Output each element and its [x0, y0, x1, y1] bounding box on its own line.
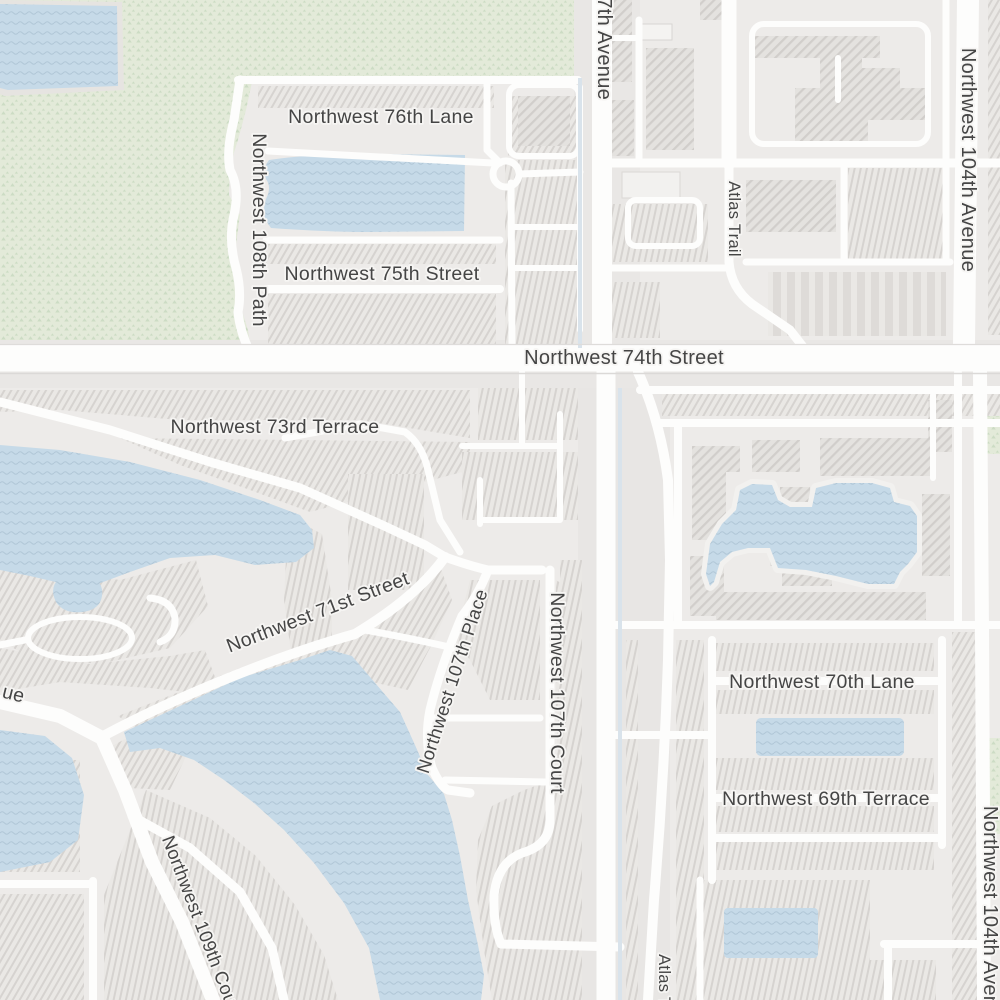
svg-text:Northwest 75th Street: Northwest 75th Street [285, 263, 480, 285]
svg-text:Northwest 69th Terrace: Northwest 69th Terrace [722, 788, 930, 810]
svg-text:Northwest 108th Path: Northwest 108th Path [248, 133, 270, 327]
svg-text:Northwest 70th Lane: Northwest 70th Lane [729, 671, 915, 693]
svg-text:Northwest 73rd Terrace: Northwest 73rd Terrace [171, 416, 380, 438]
svg-text:Atlas Trail: Atlas Trail [725, 181, 743, 257]
svg-text:Atlas Trail: Atlas Trail [655, 954, 673, 1000]
svg-text:Northwest 76th Lane: Northwest 76th Lane [288, 106, 474, 128]
svg-text:Northwest 74th Street: Northwest 74th Street [524, 347, 724, 369]
svg-text:Northwest 107th Court: Northwest 107th Court [546, 592, 568, 794]
svg-text:Northwest 104th Avenue: Northwest 104th Avenue [957, 48, 979, 272]
svg-text:Northwest 107th Avenue: Northwest 107th Avenue [593, 0, 615, 100]
svg-text:Northwest 104th Avenue: Northwest 104th Avenue [979, 806, 1000, 1000]
